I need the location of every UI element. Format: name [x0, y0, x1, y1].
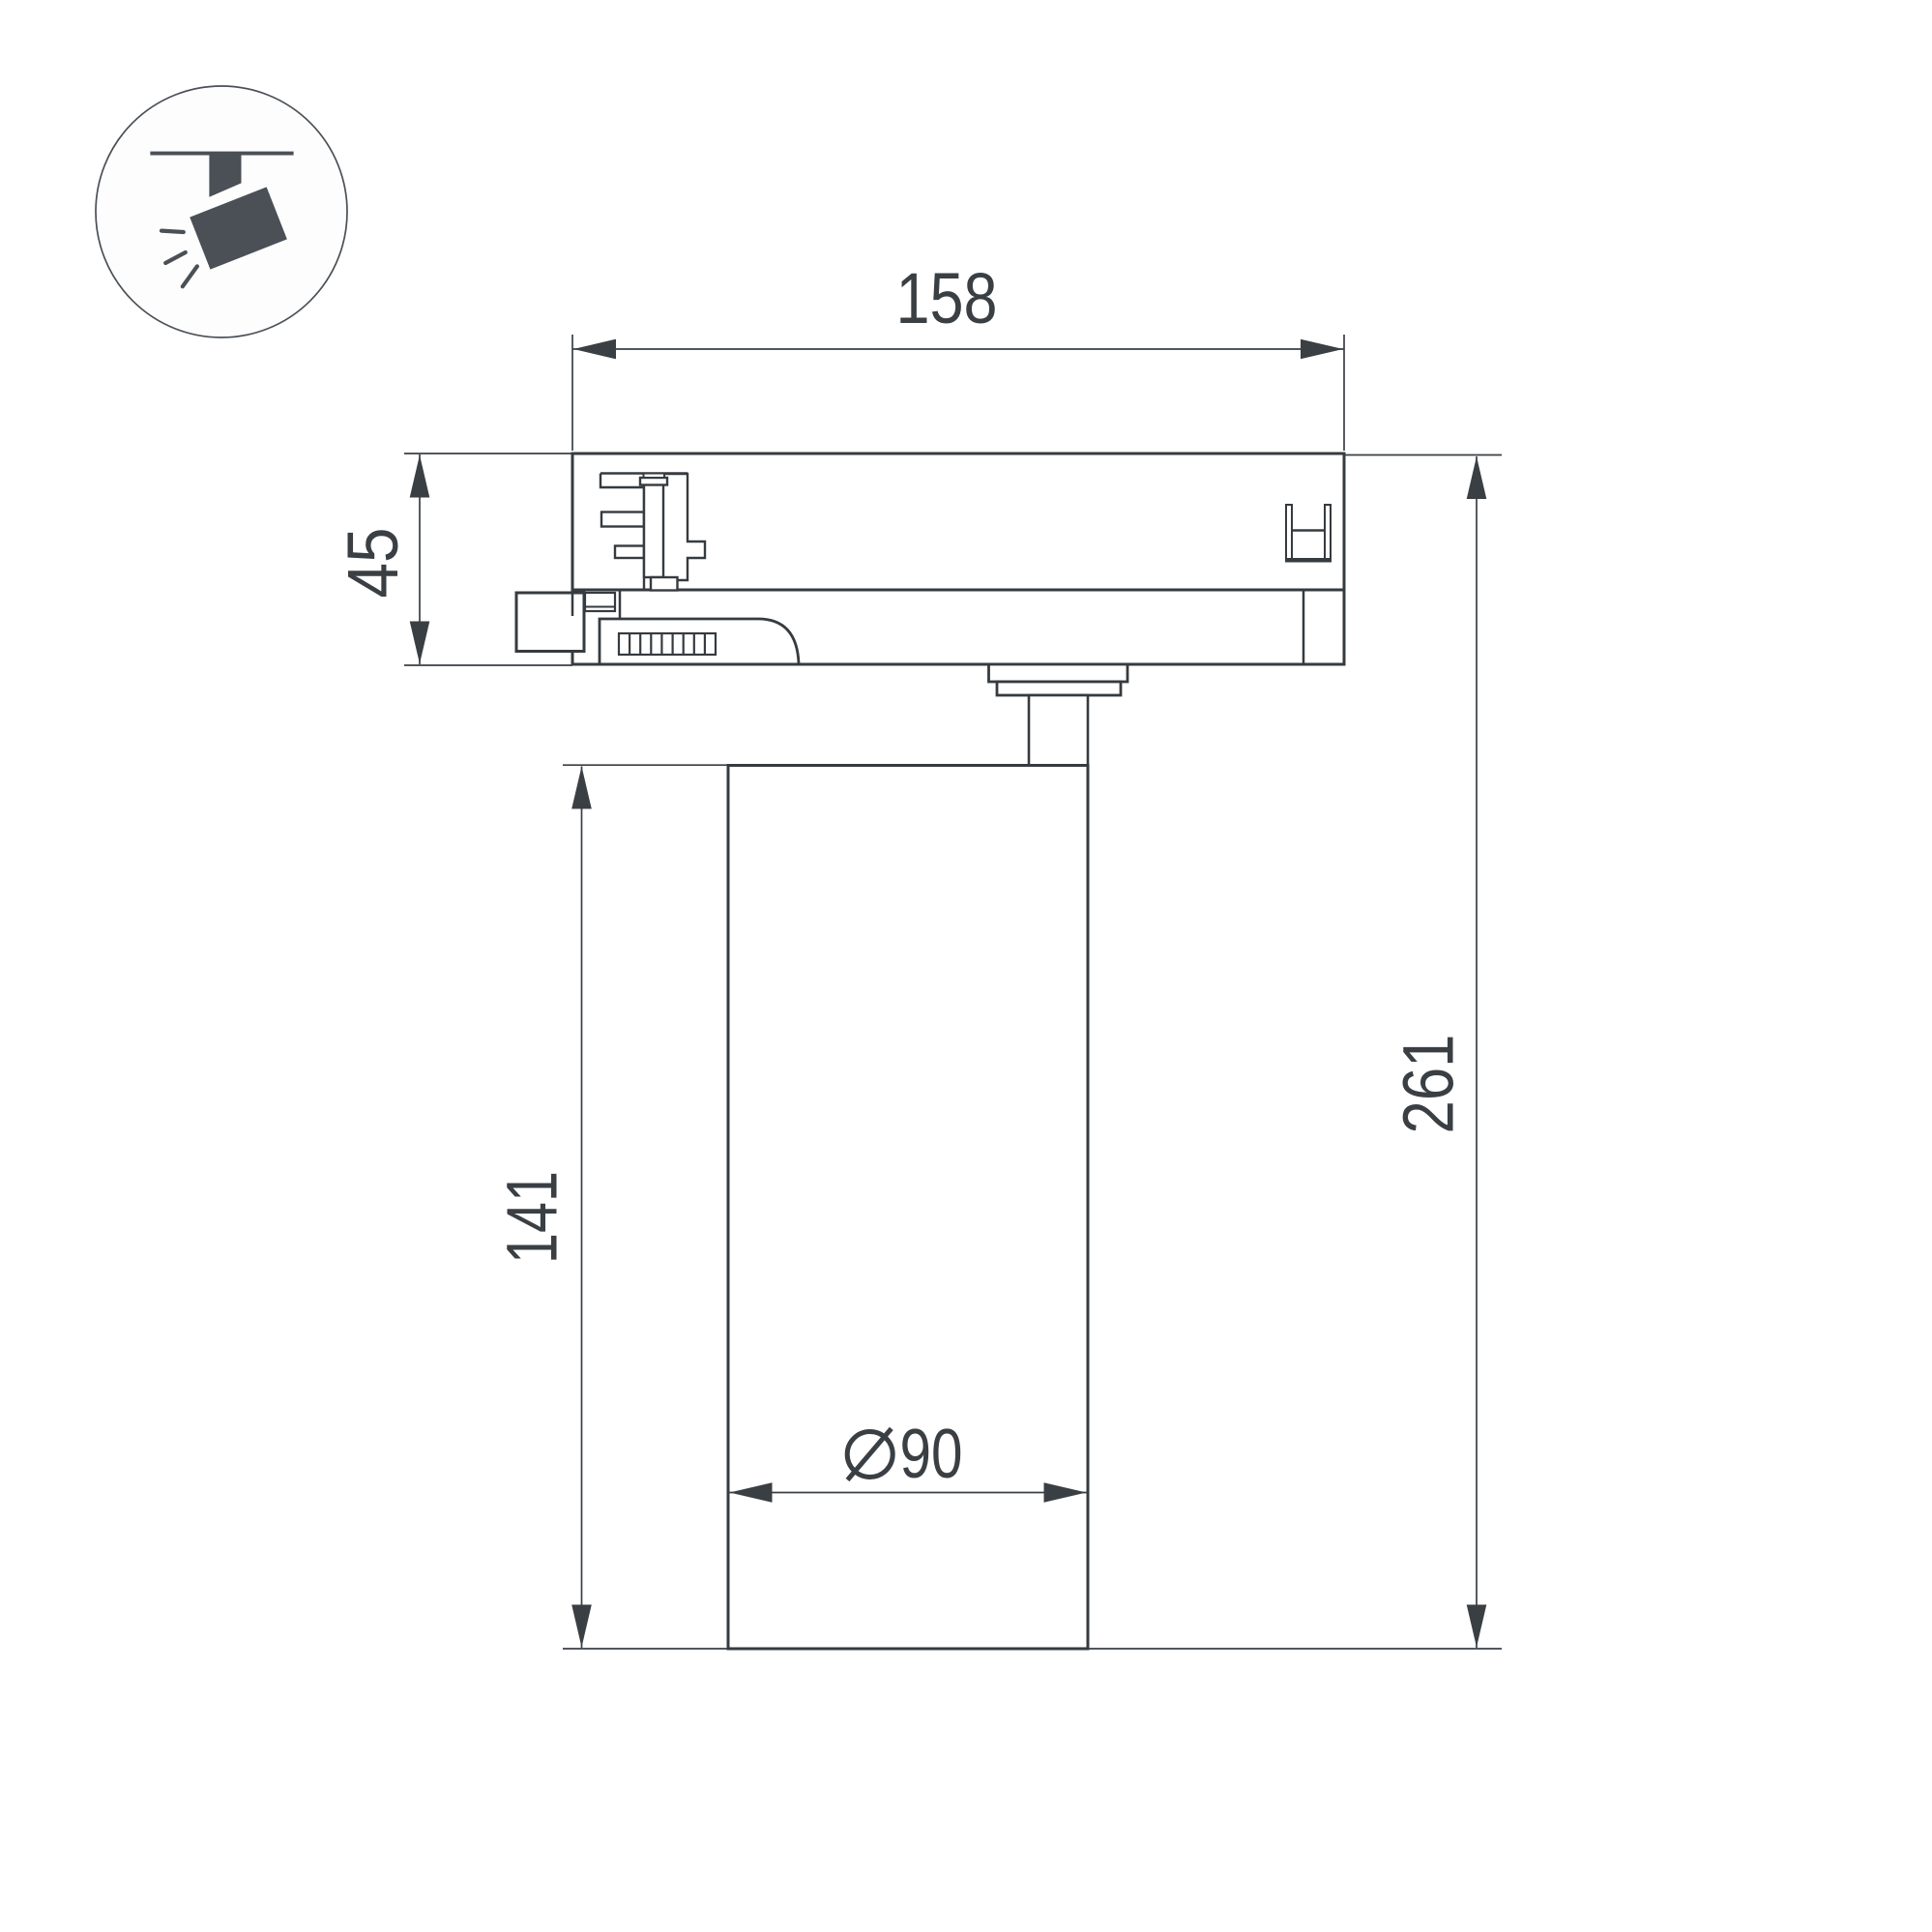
svg-text:261: 261: [1389, 1035, 1469, 1134]
svg-text:45: 45: [333, 528, 413, 599]
svg-text:158: 158: [896, 258, 998, 338]
svg-text:90: 90: [900, 1416, 963, 1493]
svg-text:141: 141: [492, 1171, 572, 1264]
